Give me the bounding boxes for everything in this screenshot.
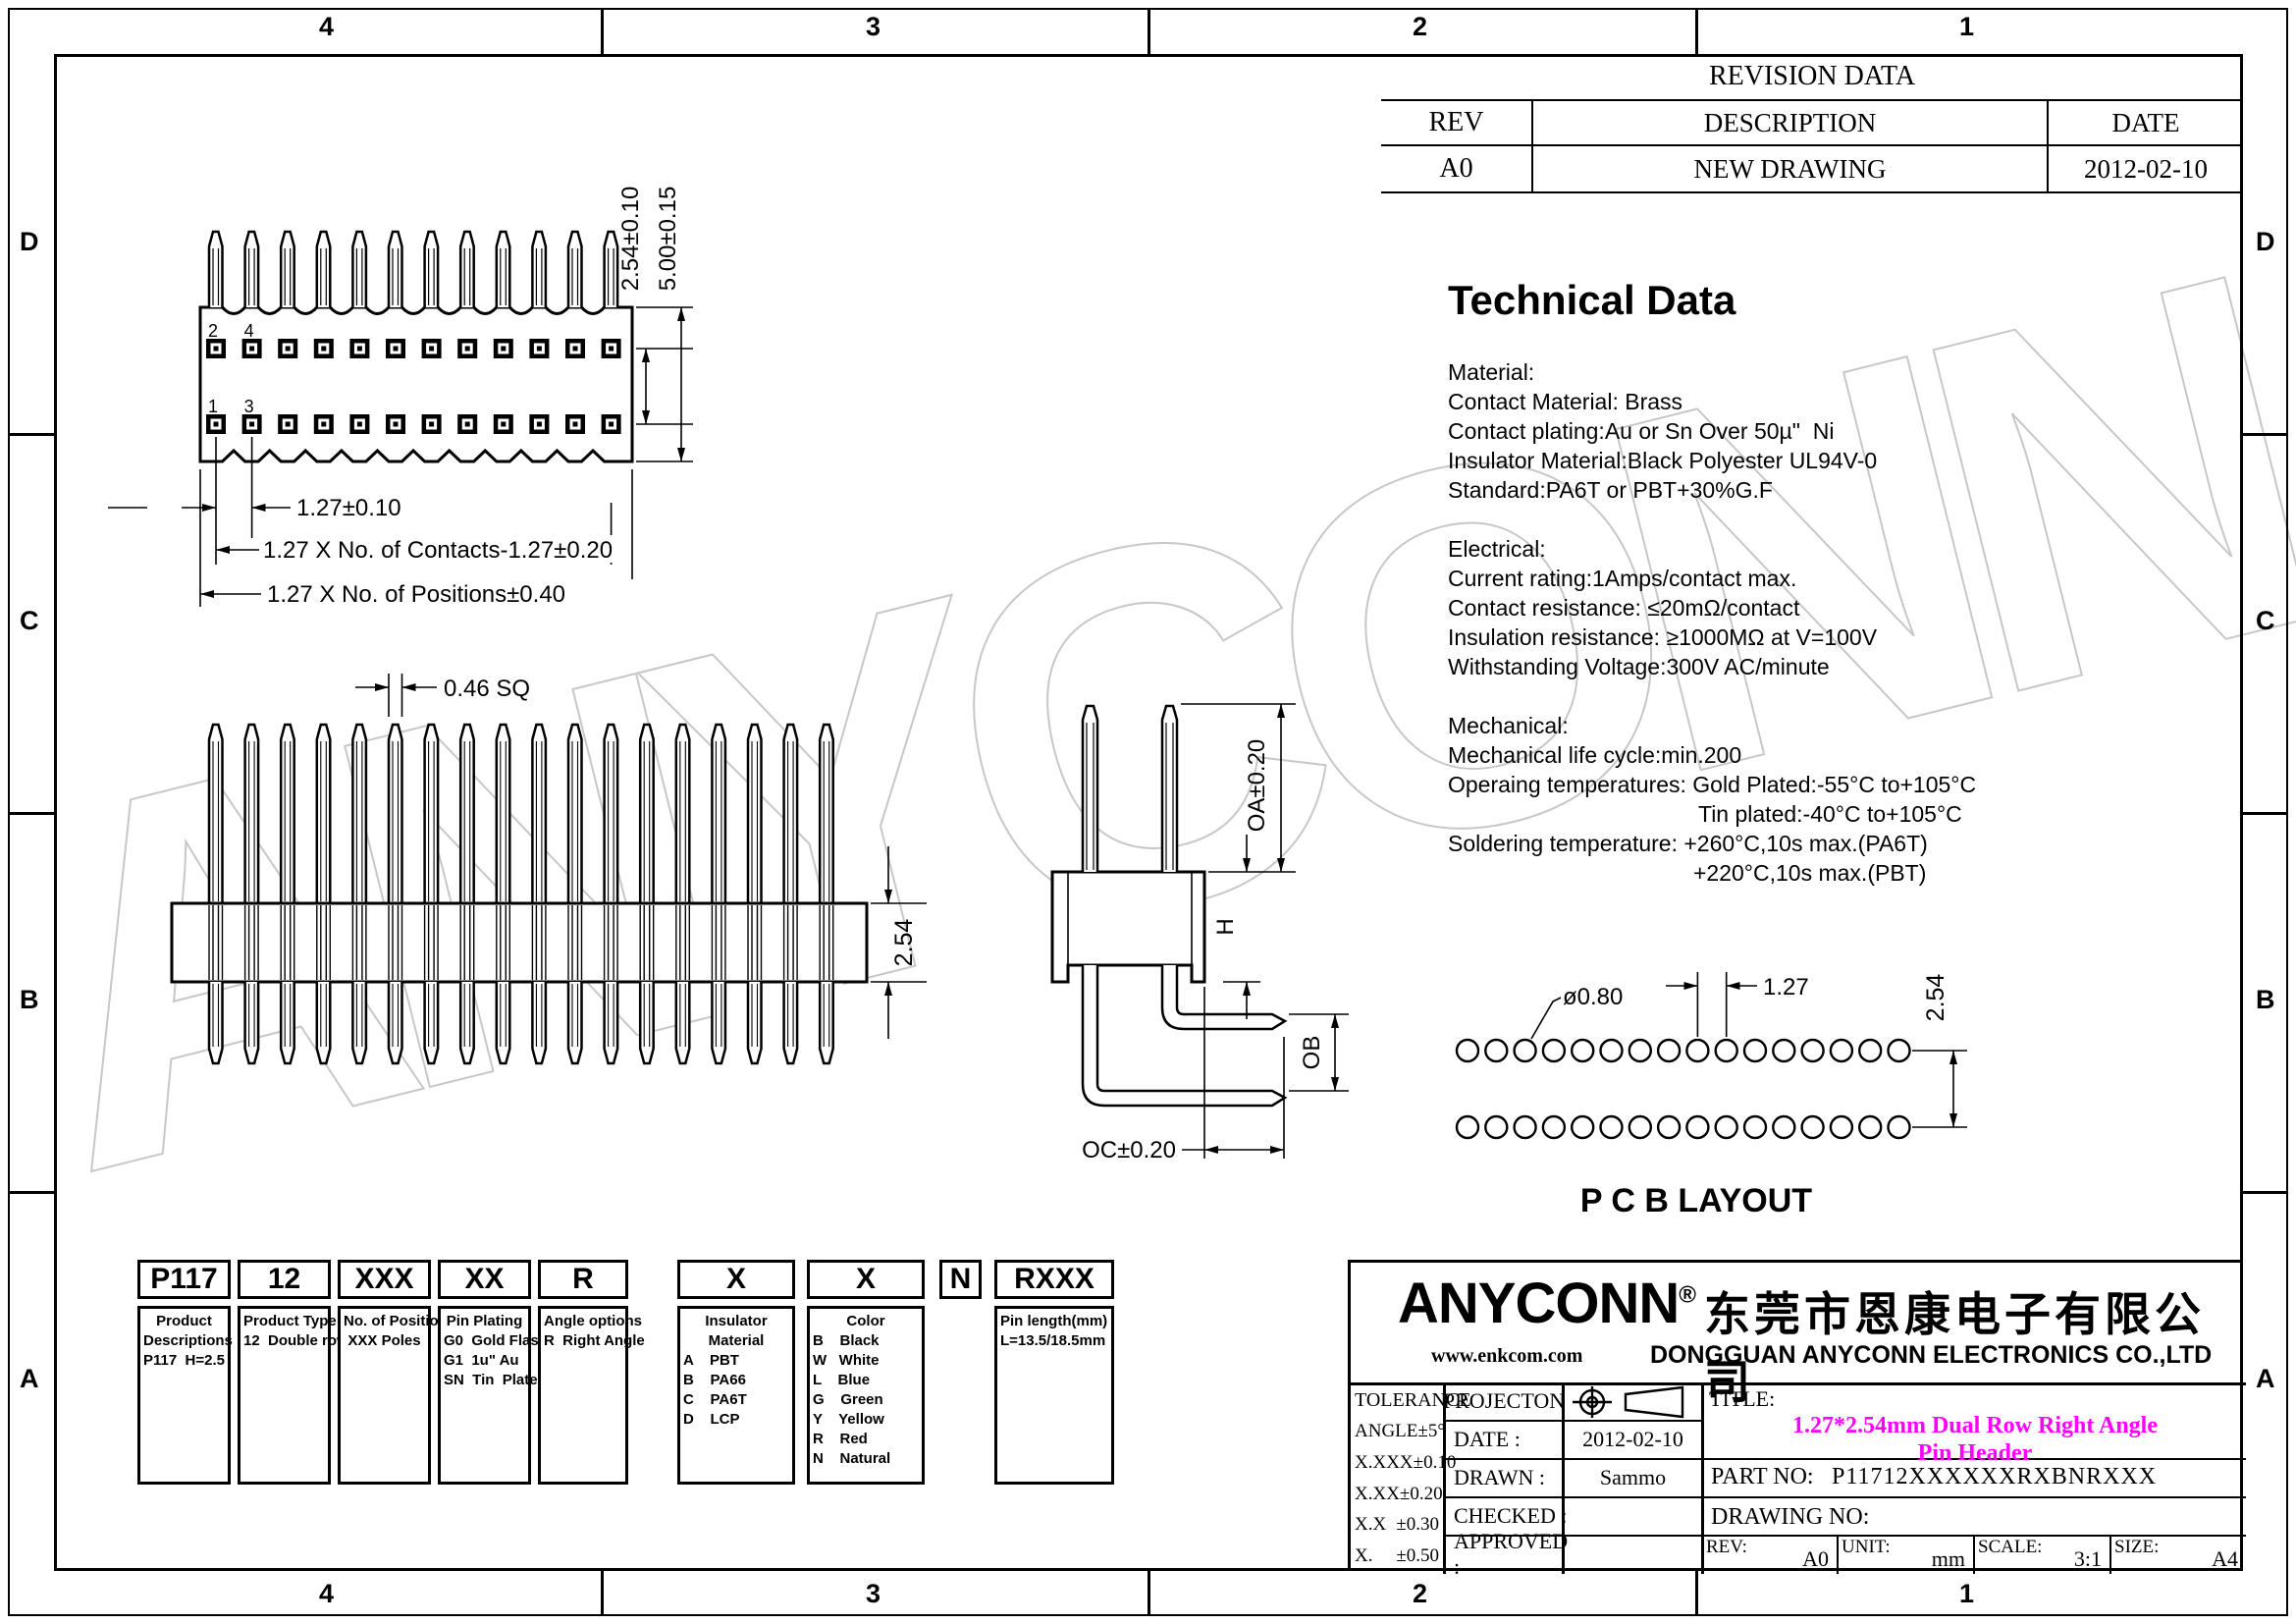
checked-value xyxy=(1565,1496,1701,1535)
pcb-hole xyxy=(1889,1116,1910,1138)
dim-front-row-pitch-label: 2.54 xyxy=(890,919,918,967)
frontview-pin-lower xyxy=(640,982,654,1063)
tech-data-line: Soldering temperature: +260°C,10s max.(P… xyxy=(1448,829,2096,858)
dim-oc-label: OC±0.20 xyxy=(1082,1137,1176,1164)
frontview-pin-upper xyxy=(712,725,725,903)
pcb-hole xyxy=(1658,1040,1680,1061)
part-desc-line: Pin length(mm) xyxy=(1000,1312,1108,1331)
part-desc-line: G Green xyxy=(813,1390,919,1410)
company-name-en: DONGGUAN ANYCONN ELECTRONICS CO.,LTD xyxy=(1650,1341,2212,1370)
size-cell: SIZE:A4 xyxy=(2109,1535,2246,1574)
pcb-hole xyxy=(1802,1116,1824,1138)
pcb-hole xyxy=(1831,1040,1852,1061)
pcb-hole xyxy=(1831,1116,1852,1138)
frontview-pin-upper xyxy=(820,725,833,903)
pcb-hole xyxy=(1773,1116,1794,1138)
topview-pin xyxy=(532,232,546,307)
part-desc-line: Product xyxy=(143,1312,225,1331)
scale-value: 3:1 xyxy=(2074,1546,2102,1572)
part-desc-line: Color xyxy=(813,1312,919,1331)
tech-data-line: Tin plated:-40°C to+105°C xyxy=(1698,799,2096,829)
pcb-hole xyxy=(1572,1040,1593,1061)
part-code-9: RXXX xyxy=(994,1260,1114,1299)
part-desc-5: Angle optionsR Right Angle xyxy=(538,1306,628,1485)
pin-number-label: 1 xyxy=(208,397,218,416)
topview-pin xyxy=(317,232,331,307)
frontview-body xyxy=(172,903,867,982)
technical-data-lines: Material:Contact Material: BrassContact … xyxy=(1448,357,2096,888)
revision-row-date: 2012-02-10 xyxy=(2047,146,2243,191)
tech-data-line: Insulation resistance: ≥1000MΩ at V=100V xyxy=(1448,623,2096,652)
part-desc-3: No. of PositionsXXX Poles xyxy=(338,1306,431,1485)
drawing-title: 1.27*2.54mm Dual Row Right Angle Pin Hea… xyxy=(1704,1412,2246,1467)
dim-body-height-label: 5.00±0.15 xyxy=(655,187,681,292)
topview-pin xyxy=(389,232,402,307)
frontview-pin-upper xyxy=(676,725,690,903)
revision-row-description: NEW DRAWING xyxy=(1531,146,2047,191)
part-desc-line: SN Tin Plated xyxy=(444,1371,525,1390)
frontview-pin-lower xyxy=(712,982,725,1063)
tolerance-title: TOLERANCE xyxy=(1355,1389,1439,1412)
pin-number-label: 2 xyxy=(208,321,218,341)
topview-pin xyxy=(460,232,474,307)
tech-data-line: Standard:PA6T or PBT+30%G.F xyxy=(1448,475,2096,505)
part-code-6: X xyxy=(677,1260,795,1299)
pcb-hole xyxy=(1601,1116,1623,1138)
pcb-hole xyxy=(1457,1040,1478,1061)
part-desc-line: Material xyxy=(683,1331,789,1351)
tech-data-line: Electrical: xyxy=(1448,534,2096,564)
frontview-pin-upper xyxy=(640,725,654,903)
part-desc-line: N Natural xyxy=(813,1449,919,1469)
pcb-hole xyxy=(1543,1116,1565,1138)
part-code-2: 12 xyxy=(238,1260,331,1299)
approved-label: APPROVED : xyxy=(1446,1535,1570,1574)
part-desc-line: B PA66 xyxy=(683,1371,789,1390)
frontview-pin-upper xyxy=(568,725,582,903)
pcb-hole xyxy=(1543,1040,1565,1061)
dim-pin-square-label: 0.46 SQ xyxy=(444,676,530,702)
part-desc-line: L Blue xyxy=(813,1371,919,1390)
drawing-sheet: ANYCONN 43214321DCBADCBA 2413 xyxy=(0,0,2296,1624)
pcb-hole xyxy=(1457,1116,1478,1138)
tech-data-line: Current rating:1Amps/contact max. xyxy=(1448,564,2096,593)
pcb-hole xyxy=(1515,1040,1536,1061)
title-block: ANYCONN® 东莞市恩康电子有限公司 www.enkcom.com DONG… xyxy=(1348,1260,2243,1571)
frontview-pin-lower xyxy=(352,982,366,1063)
pcb-hole xyxy=(1515,1116,1536,1138)
tech-data-line: Contact Material: Brass xyxy=(1448,387,2096,416)
tech-data-line: Mechanical: xyxy=(1448,711,2096,740)
dim-positions-label: 1.27 X No. of Positions±0.40 xyxy=(267,581,565,608)
pcb-layout-caption: P C B LAYOUT xyxy=(1580,1182,1812,1219)
front-view xyxy=(172,725,867,1063)
drawn-value: Sammo xyxy=(1565,1458,1701,1496)
frontview-pin-upper xyxy=(389,725,402,903)
part-desc-line: Pin Plating xyxy=(444,1312,525,1331)
part-code-3: XXX xyxy=(338,1260,431,1299)
frontview-pin-lower xyxy=(245,982,259,1063)
part-desc-line: Insulator xyxy=(683,1312,789,1331)
pcb-hole xyxy=(1744,1116,1766,1138)
part-desc-line: XXX Poles xyxy=(344,1331,425,1351)
part-desc-line: R Right Angle xyxy=(544,1331,622,1351)
part-code-7: X xyxy=(807,1260,925,1299)
projection-label: PROJECTON xyxy=(1446,1382,1562,1420)
date-value: 2012-02-10 xyxy=(1565,1420,1701,1458)
part-desc-4: Pin PlatingG0 Gold FlashG1 1u" AuSN Tin … xyxy=(438,1306,531,1485)
part-desc-line: A PBT xyxy=(683,1351,789,1371)
part-desc-line: G1 1u" Au xyxy=(444,1351,525,1371)
pcb-hole xyxy=(1485,1040,1507,1061)
pcb-hole xyxy=(1686,1040,1708,1061)
topview-pin xyxy=(605,232,618,307)
pcb-layout xyxy=(1457,1040,1910,1138)
pcb-hole xyxy=(1629,1040,1651,1061)
frontview-pin-upper xyxy=(209,725,223,903)
dim-pcb-pitch-label: 1.27 xyxy=(1763,974,1809,1001)
part-desc-9: Pin length(mm)L=13.5/18.5mm xyxy=(994,1306,1114,1485)
part-code-8: N xyxy=(939,1260,982,1299)
pcb-hole xyxy=(1744,1040,1766,1061)
topview-pin xyxy=(425,232,439,307)
pin-number-label: 3 xyxy=(244,397,254,416)
part-desc-line: P117 H=2.5 xyxy=(143,1351,225,1371)
dim-oa-label: OA±0.20 xyxy=(1244,739,1270,833)
frontview-pin-lower xyxy=(497,982,510,1063)
pcb-hole xyxy=(1485,1116,1507,1138)
unit-value: mm xyxy=(1932,1546,1965,1572)
tech-data-line: Material: xyxy=(1448,357,2096,387)
tech-data-line: Operaing temperatures: Gold Plated:-55°C… xyxy=(1448,770,2096,799)
revision-col-date: DATE xyxy=(2047,101,2243,146)
revision-col-rev: REV xyxy=(1381,101,1531,146)
dim-ob-label: OB xyxy=(1299,1036,1325,1070)
revision-col-description: DESCRIPTION xyxy=(1531,101,2047,146)
pcb-hole xyxy=(1859,1116,1881,1138)
drawing-no-label: DRAWING NO: xyxy=(1711,1504,1869,1531)
topview-pin xyxy=(245,232,259,307)
technical-data-block: Technical Data Material:Contact Material… xyxy=(1448,277,2096,888)
part-no-value: P11712XXXXXXRXBNRXXX xyxy=(1832,1464,2157,1490)
website: www.enkcom.com xyxy=(1431,1345,1582,1368)
frontview-pin-lower xyxy=(460,982,474,1063)
top-view: 2413 xyxy=(200,232,632,461)
pcb-hole xyxy=(1601,1040,1623,1061)
size-value: A4 xyxy=(2212,1546,2238,1572)
part-desc-line: Descriptions xyxy=(143,1331,225,1351)
frontview-pin-upper xyxy=(317,725,331,903)
part-desc-line: No. of Positions xyxy=(344,1312,425,1331)
pcb-hole xyxy=(1716,1040,1737,1061)
pcb-hole xyxy=(1802,1040,1824,1061)
tech-data-line: +220°C,10s max.(PBT) xyxy=(1693,858,2096,888)
pcb-hole xyxy=(1572,1116,1593,1138)
frontview-pin-lower xyxy=(281,982,294,1063)
dim-h-label: H xyxy=(1212,918,1239,935)
title-label: TITLE: xyxy=(1709,1386,1775,1412)
tech-data-line: Contact plating:Au or Sn Over 50µ" Ni xyxy=(1448,416,2096,446)
date-label: DATE : xyxy=(1446,1420,1570,1458)
pcb-hole xyxy=(1686,1116,1708,1138)
frontview-pin-upper xyxy=(784,725,798,903)
pcb-hole xyxy=(1773,1040,1794,1061)
topview-pin xyxy=(497,232,510,307)
tech-data-line: Withstanding Voltage:300V AC/minute xyxy=(1448,652,2096,681)
part-desc-line: Y Yellow xyxy=(813,1410,919,1430)
frontview-pin-lower xyxy=(784,982,798,1063)
part-desc-line: L=13.5/18.5mm xyxy=(1000,1331,1108,1351)
part-desc-line: 12 Double row xyxy=(243,1331,325,1351)
part-code-4: XX xyxy=(438,1260,531,1299)
frontview-pin-lower xyxy=(425,982,439,1063)
tolerance-panel: TOLERANCE ANGLE±5° X.XXX±0.10 X.XX±0.20 … xyxy=(1351,1382,1443,1574)
pcb-hole xyxy=(1658,1116,1680,1138)
part-desc-line: C PA6T xyxy=(683,1390,789,1410)
topview-pin xyxy=(568,232,582,307)
frontview-pin-lower xyxy=(317,982,331,1063)
frontview-pin-lower xyxy=(209,982,223,1063)
frontview-pin-upper xyxy=(497,725,510,903)
tech-data-line: Insulator Material:Black Polyester UL94V… xyxy=(1448,446,2096,475)
part-desc-line: G0 Gold Flash xyxy=(444,1331,525,1351)
part-desc-6: InsulatorMaterialA PBTB PA66C PA6TD LCP xyxy=(677,1306,795,1485)
rev-cell: REV:A0 xyxy=(1701,1535,1837,1574)
revision-table-title: REVISION DATA xyxy=(1381,54,2243,101)
dim-pcb-hole-label: ø0.80 xyxy=(1563,984,1623,1010)
part-desc-1: ProductDescriptionsP117 H=2.5 xyxy=(137,1306,231,1485)
projection-symbol-icon xyxy=(1567,1384,1698,1425)
frontview-pin-lower xyxy=(605,982,618,1063)
frontview-pin-lower xyxy=(568,982,582,1063)
part-desc-line: D LCP xyxy=(683,1410,789,1430)
revision-row-rev: A0 xyxy=(1381,146,1531,191)
dim-pcb-row-pitch-label: 2.54 xyxy=(1922,974,1949,1022)
spacer xyxy=(1448,505,2096,534)
topview-pin xyxy=(281,232,294,307)
topview-body xyxy=(200,307,632,461)
part-no-label: PART NO: xyxy=(1711,1464,1814,1490)
approved-value xyxy=(1565,1535,1701,1574)
frontview-pin-upper xyxy=(281,725,294,903)
frontview-pin-lower xyxy=(532,982,546,1063)
pcb-hole xyxy=(1716,1116,1737,1138)
pcb-hole xyxy=(1859,1040,1881,1061)
technical-data-title: Technical Data xyxy=(1448,277,2096,324)
drawn-label: DRAWN : xyxy=(1446,1458,1570,1496)
frontview-pin-upper xyxy=(605,725,618,903)
frontview-pin-upper xyxy=(425,725,439,903)
rev-value: A0 xyxy=(1802,1546,1829,1572)
scale-cell: SCALE:3:1 xyxy=(1973,1535,2109,1574)
part-desc-2: Product Type12 Double row xyxy=(238,1306,331,1485)
registered-icon: ® xyxy=(1679,1282,1695,1309)
part-code-1: P117 xyxy=(137,1260,231,1299)
revision-table: REVISION DATA REV DESCRIPTION DATE A0 NE… xyxy=(1381,54,2243,191)
tech-data-line: Mechanical life cycle:min.200 xyxy=(1448,740,2096,770)
dim-pin-pitch-label: 1.27±0.10 xyxy=(296,495,401,521)
tech-data-line: Contact resistance: ≤20mΩ/contact xyxy=(1448,593,2096,623)
frontview-pin-lower xyxy=(676,982,690,1063)
pcb-hole xyxy=(1889,1040,1910,1061)
topview-pin xyxy=(352,232,366,307)
frontview-pin-upper xyxy=(460,725,474,903)
part-desc-line: Product Type xyxy=(243,1312,325,1331)
part-desc-7: ColorB BlackW WhiteL BlueG GreenY Yellow… xyxy=(807,1306,925,1485)
dim-row-pitch-label: 2.54±0.10 xyxy=(617,187,644,292)
frontview-pin-upper xyxy=(748,725,762,903)
unit-cell: UNIT:mm xyxy=(1837,1535,1973,1574)
part-desc-line: Angle options xyxy=(544,1312,622,1331)
frontview-pin-lower xyxy=(820,982,833,1063)
part-code-5: R xyxy=(538,1260,628,1299)
part-desc-line: B Black xyxy=(813,1331,919,1351)
pcb-hole xyxy=(1629,1116,1651,1138)
part-desc-line: W White xyxy=(813,1351,919,1371)
frontview-pin-lower xyxy=(748,982,762,1063)
part-desc-line: R Red xyxy=(813,1430,919,1449)
anyconn-logo: ANYCONN® xyxy=(1398,1271,1695,1336)
spacer xyxy=(1448,681,2096,711)
topview-pin xyxy=(209,232,223,307)
frontview-pin-lower xyxy=(389,982,402,1063)
pin-number-label: 4 xyxy=(244,321,254,341)
frontview-pin-upper xyxy=(532,725,546,903)
dim-contacts-label: 1.27 X No. of Contacts-1.27±0.20 xyxy=(263,537,613,564)
frontview-pin-upper xyxy=(352,725,366,903)
frontview-pin-upper xyxy=(245,725,259,903)
